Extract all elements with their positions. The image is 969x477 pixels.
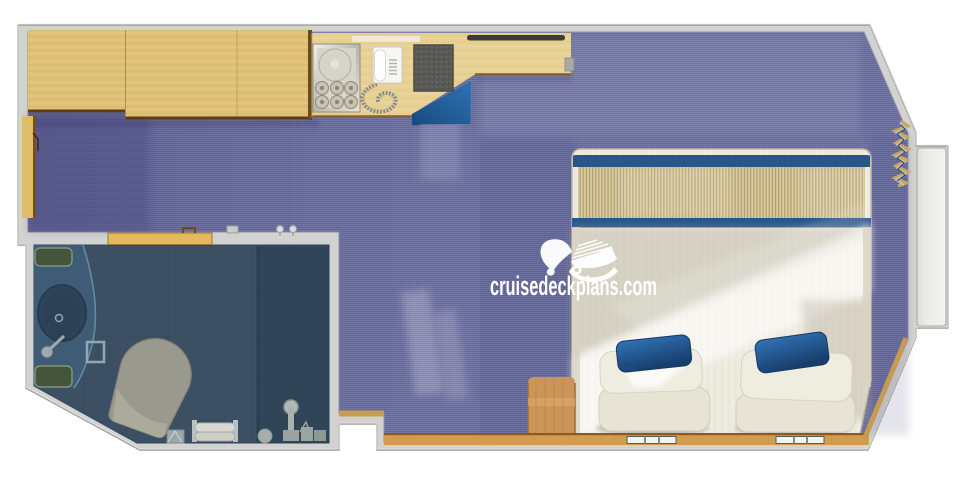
svg-text:cruisedeckplans.com: cruisedeckplans.com xyxy=(490,271,657,301)
